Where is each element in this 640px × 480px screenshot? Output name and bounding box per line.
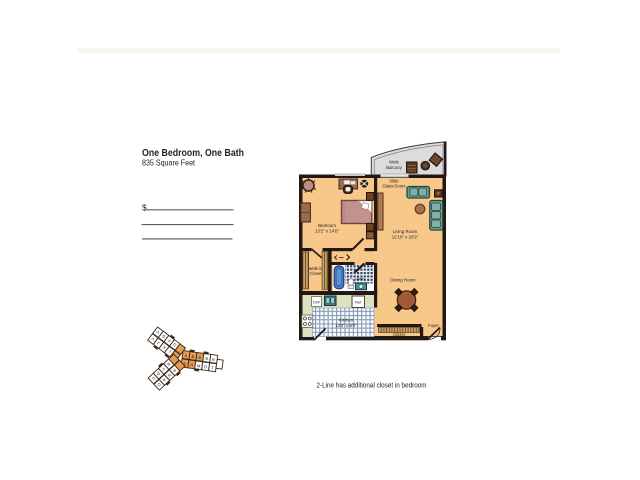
svg-text:Balcony: Balcony [386,165,402,170]
svg-text:13'2" x 14'0": 13'2" x 14'0" [315,229,340,234]
svg-text:Living Room: Living Room [393,229,418,234]
svg-text:M: M [197,363,201,368]
svg-text:Closet: Closet [310,271,323,276]
svg-text:835 Square Feet: 835 Square Feet [142,158,196,168]
svg-text:Dining Room: Dining Room [390,278,416,283]
svg-text:2-Line has additional closet i: 2-Line has additional closet in bedroom [317,381,427,390]
svg-text:13'0" x 9'0": 13'0" x 9'0" [335,323,357,328]
svg-text:12'10" x 20'2": 12'10" x 20'2" [392,235,419,240]
svg-text:Bath: Bath [356,276,364,281]
svg-text:Bedroom: Bedroom [318,223,336,228]
svg-text:Foyer: Foyer [428,323,439,328]
svg-text:Closet: Closet [393,332,406,337]
svg-text:Kitchen: Kitchen [339,318,354,323]
svg-text:$: $ [142,203,147,213]
svg-text:Wide: Wide [389,160,400,165]
svg-text:Ref: Ref [355,300,362,305]
svg-text:DW: DW [313,300,320,305]
svg-text:Glass Doors: Glass Doors [382,184,405,189]
